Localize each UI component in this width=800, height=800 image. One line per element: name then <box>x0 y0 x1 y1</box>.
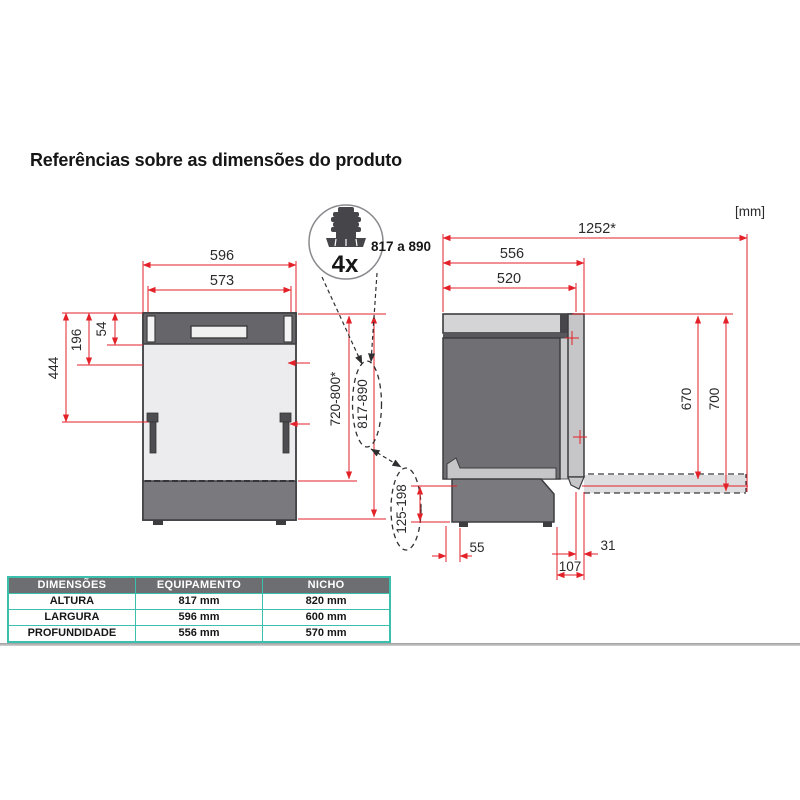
row-niche: 820 mm <box>263 594 390 610</box>
row-equipment: 556 mm <box>135 626 262 643</box>
front-view-drawing <box>143 313 296 525</box>
dim-520-label: 520 <box>497 271 521 287</box>
dim-107-label: 107 <box>559 559 582 574</box>
row-equipment: 596 mm <box>135 610 262 626</box>
dim-125-198-label: 125-198 <box>394 484 409 534</box>
table-row: PROFUNDIDADE 556 mm 570 mm <box>8 626 390 643</box>
unit-label: [mm] <box>735 204 765 219</box>
row-equipment: 817 mm <box>135 594 262 610</box>
dim-31-label: 31 <box>600 538 615 553</box>
dimensions-table: DIMENSÕES EQUIPAMENTO NICHO ALTURA 817 m… <box>7 576 391 643</box>
dim-700-label: 700 <box>707 388 722 411</box>
row-label: LARGURA <box>8 610 135 626</box>
dim-1252-label: 1252* <box>578 221 616 237</box>
callout-connector <box>371 449 401 467</box>
row-niche: 570 mm <box>263 626 390 643</box>
row-label: ALTURA <box>8 594 135 610</box>
dim-573-label: 573 <box>210 273 234 289</box>
dim-55-label: 55 <box>469 540 484 555</box>
dim-596-label: 596 <box>210 248 234 264</box>
table-row: ALTURA 817 mm 820 mm <box>8 594 390 610</box>
foot-quantity-label: 4x <box>332 251 359 278</box>
table-header-row: DIMENSÕES EQUIPAMENTO NICHO <box>8 577 390 594</box>
dim-556-label: 556 <box>500 246 524 262</box>
header-equipamento: EQUIPAMENTO <box>135 577 262 594</box>
manual-page: Referências sobre as dimensões do produt… <box>0 0 800 800</box>
row-niche: 600 mm <box>263 610 390 626</box>
dim-54-label: 54 <box>94 321 109 337</box>
header-nicho: NICHO <box>263 577 390 594</box>
dim-196-label: 196 <box>69 329 84 352</box>
table-row: LARGURA 596 mm 600 mm <box>8 610 390 626</box>
header-dimensoes: DIMENSÕES <box>8 577 135 594</box>
dim-817-890-label: 817-890 <box>355 379 370 429</box>
dim-670-label: 670 <box>679 388 694 411</box>
dimension-drawing: 596 573 54 196 444 720-800* 817-890 4x <box>0 0 800 800</box>
dim-444-label: 444 <box>46 356 61 379</box>
foot-detail-bubble: 4x 817 a 890 <box>309 205 431 364</box>
dim-720-800-label: 720-800* <box>328 371 343 427</box>
page-separator <box>0 643 800 646</box>
side-view-drawing <box>443 314 746 527</box>
row-label: PROFUNDIDADE <box>8 626 135 643</box>
foot-range-label: 817 a 890 <box>371 239 431 254</box>
